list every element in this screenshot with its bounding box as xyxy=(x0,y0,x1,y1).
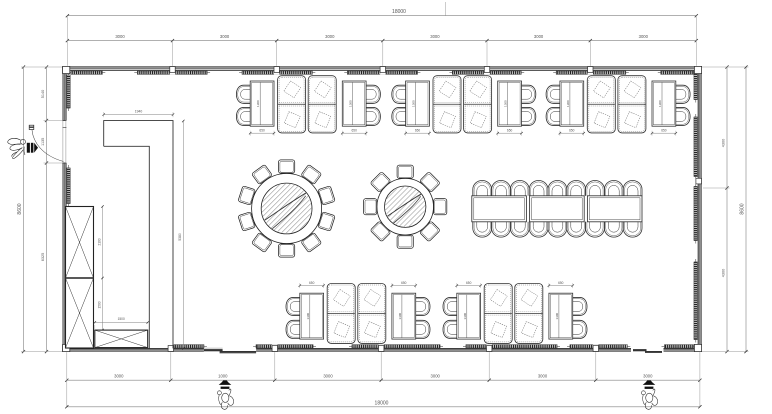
svg-text:650: 650 xyxy=(569,128,575,132)
svg-text:3000: 3000 xyxy=(534,34,544,39)
svg-text:18000: 18000 xyxy=(392,9,406,15)
svg-text:650: 650 xyxy=(415,128,421,132)
svg-text:650: 650 xyxy=(558,281,564,285)
svg-text:1300: 1300 xyxy=(348,100,352,107)
svg-text:1300: 1300 xyxy=(398,312,402,319)
svg-text:1000: 1000 xyxy=(218,374,228,379)
svg-text:3000: 3000 xyxy=(115,34,125,39)
svg-text:650: 650 xyxy=(309,281,315,285)
svg-text:4300: 4300 xyxy=(722,269,726,277)
svg-text:3000: 3000 xyxy=(114,374,124,379)
svg-text:6325: 6325 xyxy=(41,253,45,261)
svg-text:1135: 1135 xyxy=(41,138,45,146)
svg-text:650: 650 xyxy=(661,128,667,132)
svg-text:1300: 1300 xyxy=(504,100,508,107)
svg-text:1940: 1940 xyxy=(135,109,143,113)
svg-text:650: 650 xyxy=(352,128,358,132)
svg-text:8600: 8600 xyxy=(740,203,746,214)
svg-text:3000: 3000 xyxy=(323,374,333,379)
svg-text:5140: 5140 xyxy=(41,90,45,98)
svg-text:1300: 1300 xyxy=(256,100,260,107)
svg-text:3000: 3000 xyxy=(431,374,441,379)
svg-text:650: 650 xyxy=(507,128,513,132)
svg-text:1500: 1500 xyxy=(97,301,101,308)
svg-text:1300: 1300 xyxy=(463,312,467,319)
svg-text:650: 650 xyxy=(401,281,407,285)
svg-text:8600: 8600 xyxy=(17,203,23,214)
svg-text:1300: 1300 xyxy=(658,100,662,107)
svg-text:650: 650 xyxy=(259,128,265,132)
svg-text:3000: 3000 xyxy=(325,34,335,39)
svg-text:650: 650 xyxy=(466,281,472,285)
svg-text:4300: 4300 xyxy=(722,139,726,147)
svg-text:3000: 3000 xyxy=(220,34,230,39)
svg-text:1300: 1300 xyxy=(306,312,310,319)
svg-text:1300: 1300 xyxy=(566,100,570,107)
svg-text:1500: 1500 xyxy=(118,317,125,321)
svg-text:3000: 3000 xyxy=(430,34,440,39)
svg-text:3000: 3000 xyxy=(639,34,649,39)
svg-text:18000: 18000 xyxy=(375,400,389,406)
svg-text:3000: 3000 xyxy=(643,374,653,379)
svg-text:1300: 1300 xyxy=(555,312,559,319)
svg-text:2100: 2100 xyxy=(97,238,101,245)
svg-text:1300: 1300 xyxy=(412,100,416,107)
svg-text:3000: 3000 xyxy=(538,374,548,379)
svg-text:5380: 5380 xyxy=(178,233,182,241)
